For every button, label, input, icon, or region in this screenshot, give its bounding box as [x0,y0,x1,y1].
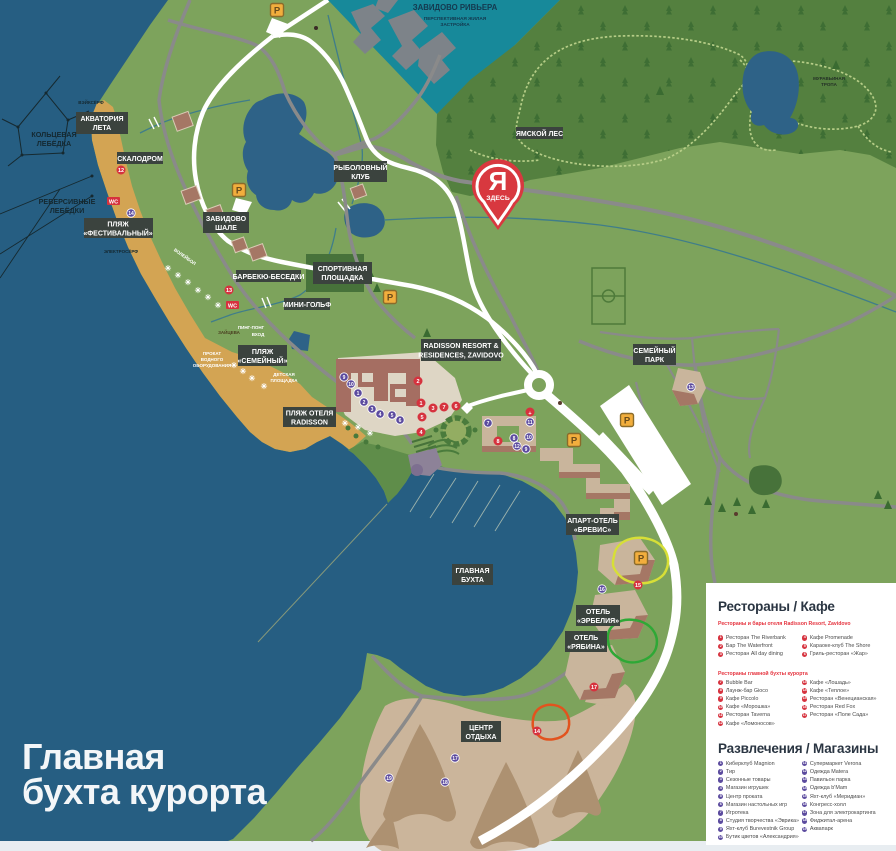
svg-text:18: 18 [442,780,448,786]
svg-text:ЛЕБЁДКИ: ЛЕБЁДКИ [50,206,85,215]
svg-text:3: 3 [371,407,374,413]
svg-text:4: 4 [379,412,382,418]
svg-text:ЦЕНТР: ЦЕНТР [469,725,493,732]
svg-text:ПЛОЩАДКА: ПЛОЩАДКА [321,275,363,282]
svg-text:«БРЕВИС»: «БРЕВИС» [574,527,611,534]
svg-text:8: 8 [496,439,499,445]
svg-text:ПИНГ-ПОНГ: ПИНГ-ПОНГ [238,325,265,330]
svg-text:✳: ✳ [175,271,182,280]
svg-text:3: 3 [431,406,434,412]
svg-text:РЫБОЛОВНЫЙ: РЫБОЛОВНЫЙ [333,163,387,172]
svg-text:АКВАТОРИЯ: АКВАТОРИЯ [80,116,123,123]
svg-text:✳: ✳ [367,429,374,438]
svg-text:P: P [571,435,578,446]
svg-text:12: 12 [118,168,124,174]
svg-text:2: 2 [416,379,419,385]
svg-text:13: 13 [226,288,232,294]
svg-text:ЯМСКОЙ ЛЕС: ЯМСКОЙ ЛЕС [516,129,563,138]
svg-text:9: 9 [343,375,346,381]
svg-text:ПЛОЩАДКА: ПЛОЩАДКА [270,378,298,383]
svg-text:14: 14 [128,211,134,217]
svg-text:БУХТА: БУХТА [461,577,484,584]
svg-text:«ЭРБЕЛИЯ»: «ЭРБЕЛИЯ» [577,618,619,625]
svg-text:RESIDENCES, ZAVIDOVO: RESIDENCES, ZAVIDOVO [418,353,504,360]
svg-text:СПОРТИВНАЯ: СПОРТИВНАЯ [318,266,368,273]
svg-text:10: 10 [526,435,532,441]
svg-text:ЛЕБЁДКА: ЛЕБЁДКА [37,139,72,148]
svg-text:+: + [528,411,531,417]
svg-text:1: 1 [357,391,360,397]
svg-text:WC: WC [228,304,237,310]
svg-text:ОТЕЛЬ: ОТЕЛЬ [574,635,598,642]
svg-text:P: P [638,553,645,564]
svg-text:14: 14 [534,729,541,735]
svg-text:ПЕРСПЕКТИВНАЯ ЖИЛАЯ: ПЕРСПЕКТИВНАЯ ЖИЛАЯ [424,16,487,22]
svg-text:P: P [624,415,631,426]
svg-text:10: 10 [348,382,354,388]
svg-text:6: 6 [399,418,402,424]
svg-text:✳: ✳ [355,423,362,432]
svg-text:12: 12 [514,444,520,450]
svg-text:15: 15 [635,583,641,589]
svg-text:ЗАВИДОВО РИВЬЕРА: ЗАВИДОВО РИВЬЕРА [413,3,498,12]
svg-text:ДЕТСКАЯ: ДЕТСКАЯ [273,372,294,377]
svg-text:✳: ✳ [215,301,222,310]
svg-text:ШАЛЕ: ШАЛЕ [215,225,237,232]
svg-text:2: 2 [363,400,366,406]
svg-text:ТРОПА: ТРОПА [821,82,837,87]
svg-text:19: 19 [386,776,392,782]
svg-text:ГЛАВНАЯ: ГЛАВНАЯ [456,568,490,575]
svg-text:6: 6 [454,404,457,410]
svg-text:WC: WC [109,200,118,206]
svg-text:ОТЕЛЬ: ОТЕЛЬ [586,609,610,616]
svg-text:16: 16 [599,587,605,593]
svg-text:СКАЛОДРОМ: СКАЛОДРОМ [117,156,163,163]
svg-text:СЕМЕЙНЫЙ: СЕМЕЙНЫЙ [633,346,675,355]
svg-text:ВХОД: ВХОД [252,332,265,337]
svg-text:ПЛЯЖ ОТЕЛЯ: ПЛЯЖ ОТЕЛЯ [286,411,334,418]
svg-text:МИНИ-ГОЛЬФ: МИНИ-ГОЛЬФ [283,302,331,309]
svg-text:13: 13 [688,385,694,391]
svg-text:ЭЛЕКТРОСЁРФ: ЭЛЕКТРОСЁРФ [104,248,138,254]
svg-text:✳: ✳ [205,293,212,302]
svg-text:P: P [236,185,243,196]
svg-text:АПАРТ-ОТЕЛЬ: АПАРТ-ОТЕЛЬ [567,518,618,525]
svg-text:ВОДНОГО: ВОДНОГО [201,357,224,362]
svg-text:ПРОКАТ: ПРОКАТ [203,351,221,356]
svg-text:17: 17 [452,756,458,762]
svg-text:ПЛЯЖ: ПЛЯЖ [252,349,274,356]
svg-text:«ФЕСТИВАЛЬНЫЙ»: «ФЕСТИВАЛЬНЫЙ» [83,229,152,238]
svg-text:МУРАВЬИНАЯ: МУРАВЬИНАЯ [813,76,845,81]
svg-text:RADISSON RESORT &: RADISSON RESORT & [423,343,498,350]
svg-text:ПЛЯЖ: ПЛЯЖ [107,222,129,229]
svg-text:✳: ✳ [165,264,172,273]
svg-text:БАРБЕКЮ-БЕСЕДКИ: БАРБЕКЮ-БЕСЕДКИ [233,274,305,281]
svg-text:ОБОРУДОВАНИЯ: ОБОРУДОВАНИЯ [193,363,231,368]
svg-text:ОТДЫХА: ОТДЫХА [465,734,496,741]
svg-text:«СЕМЕЙНЫЙ»: «СЕМЕЙНЫЙ» [238,356,288,365]
svg-text:✳: ✳ [185,278,192,287]
svg-text:✳: ✳ [240,367,247,376]
svg-text:ВЭЙКСЁРФ: ВЭЙКСЁРФ [78,98,104,105]
svg-text:КЛУБ: КЛУБ [351,174,370,181]
svg-text:✳: ✳ [195,286,202,295]
svg-text:9: 9 [525,447,528,453]
svg-text:P: P [387,292,394,303]
svg-text:✳: ✳ [261,382,268,391]
svg-text:8: 8 [513,436,516,442]
svg-text:ЗДЕСЬ: ЗДЕСЬ [486,195,510,202]
svg-text:1: 1 [419,401,422,407]
svg-text:РЕВЕРСИВНЫЕ: РЕВЕРСИВНЫЕ [39,197,96,206]
svg-text:7: 7 [442,405,445,411]
svg-text:11: 11 [527,420,533,426]
svg-text:7: 7 [487,421,490,427]
svg-text:5: 5 [420,415,423,421]
svg-text:✳: ✳ [249,374,256,383]
svg-text:5: 5 [391,413,394,419]
svg-text:17: 17 [591,685,597,691]
svg-text:ПАРК: ПАРК [645,357,665,364]
svg-text:ЗАВИДОВО: ЗАВИДОВО [206,216,247,223]
svg-text:КОЛЬЦЕВАЯ: КОЛЬЦЕВАЯ [31,130,76,139]
svg-text:RADISSON: RADISSON [291,420,328,427]
svg-text:ЛЕТА: ЛЕТА [93,125,111,132]
svg-text:«РЯБИНА»: «РЯБИНА» [567,644,605,651]
svg-text:Я: Я [489,166,508,196]
svg-text:P: P [274,5,281,16]
